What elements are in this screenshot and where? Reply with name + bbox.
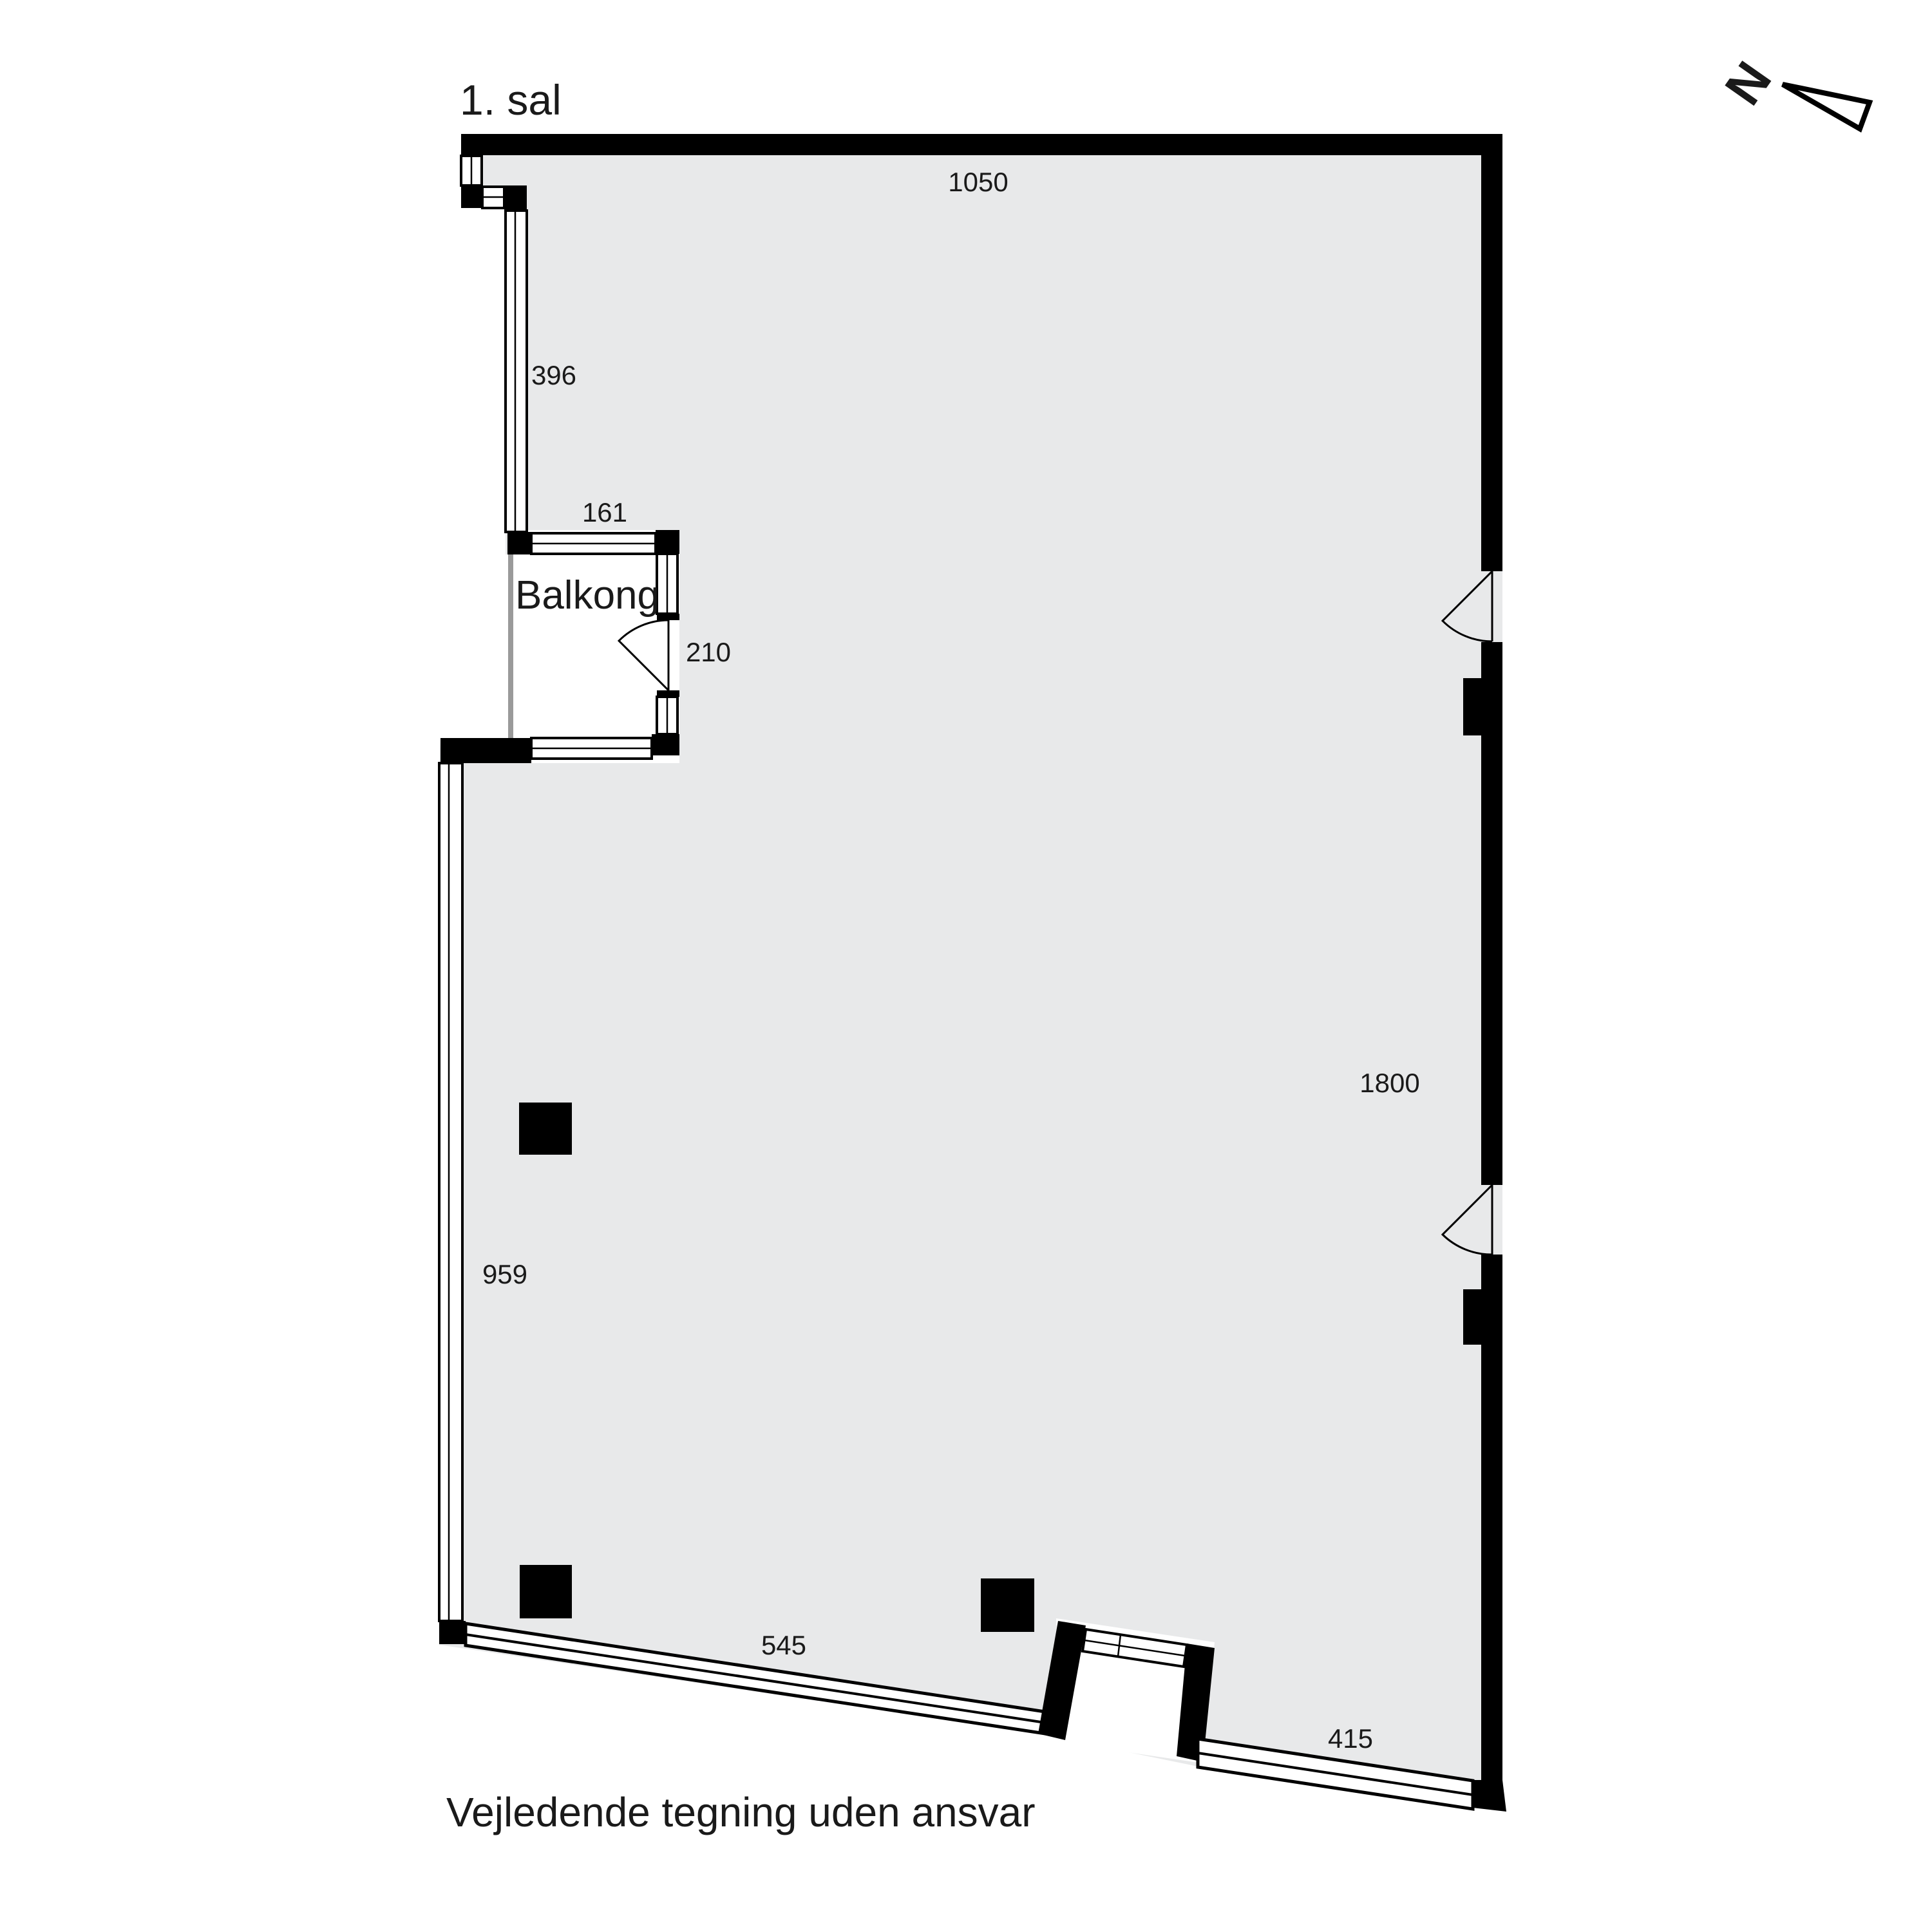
wall-pier-right-2 — [1463, 1289, 1502, 1345]
balcony-corner-bottom-right — [652, 734, 679, 755]
dim-bottom-left-window: 545 — [761, 1630, 806, 1660]
balcony-window-right-lower — [657, 697, 677, 734]
dim-balcony-door: 210 — [686, 637, 731, 667]
balcony-area — [508, 530, 679, 763]
dim-left-upper-window: 396 — [531, 360, 576, 390]
dim-left-lower-window: 959 — [482, 1259, 527, 1289]
floor-plan-svg: N 1. sal Balkong 1050 396 161 210 1800 9… — [0, 0, 1932, 1932]
wall-pier-right-1 — [1463, 678, 1502, 735]
north-compass: N — [1714, 52, 1870, 129]
balcony-window-bottom — [531, 738, 652, 759]
balcony-open-edge — [508, 554, 513, 738]
pillar — [519, 1103, 572, 1155]
window-jog-small — [482, 187, 504, 208]
wall-right-upper — [1481, 155, 1502, 571]
balcony-window-right-upper — [657, 554, 677, 614]
wall-top — [461, 134, 1502, 155]
pillar — [520, 1565, 572, 1618]
dim-top-wall: 1050 — [948, 167, 1008, 197]
wall-corner-bottom-right — [1473, 1780, 1506, 1812]
wall-corner-bottom-left — [439, 1621, 466, 1644]
disclaimer-text: Vejledende tegning uden ansvar — [446, 1789, 1036, 1835]
dim-right-wall: 1800 — [1359, 1068, 1419, 1098]
floor-plan-page: N 1. sal Balkong 1050 396 161 210 1800 9… — [0, 0, 1932, 1932]
room-floor — [439, 134, 1506, 1811]
north-arrow-icon — [1783, 84, 1870, 129]
room-label-balcony: Balkong — [515, 573, 659, 618]
north-letter: N — [1714, 52, 1782, 115]
balcony-window-top — [531, 533, 656, 554]
window-top-left — [461, 156, 482, 185]
pillar — [981, 1578, 1034, 1632]
dim-balcony-width: 161 — [582, 497, 627, 527]
dim-bottom-right-window: 415 — [1328, 1723, 1373, 1754]
wall-jog-block-a — [461, 185, 482, 208]
wall-jog-block-b — [504, 185, 527, 211]
page-title: 1. sal — [460, 76, 562, 124]
balcony-pier-upper — [657, 614, 679, 620]
wall-block-balcony-bottom-left — [440, 738, 531, 763]
balcony-corner-top-left — [507, 532, 531, 554]
window-strip-left-upper — [506, 211, 527, 532]
balcony-corner-top-right — [656, 530, 679, 554]
window-strip-left-lower — [439, 763, 462, 1621]
